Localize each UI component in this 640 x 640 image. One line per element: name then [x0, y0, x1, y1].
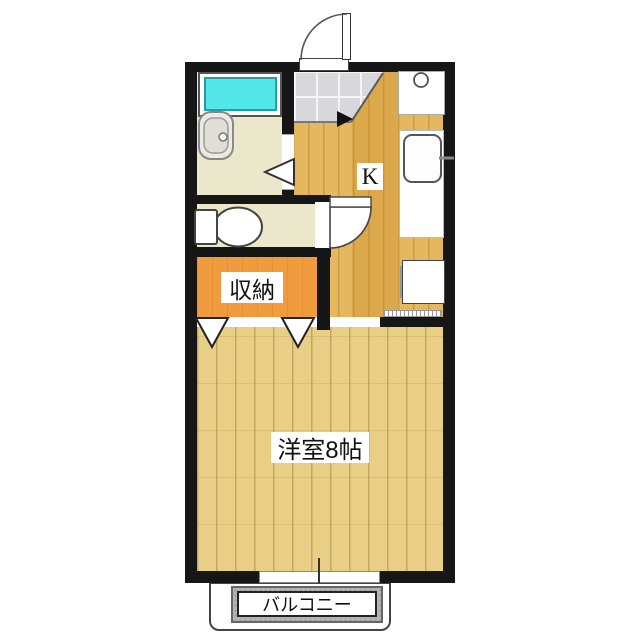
wall-bathroom-right — [282, 62, 294, 136]
bathtub — [204, 77, 277, 111]
stove-unit — [398, 71, 445, 115]
wall-left — [185, 62, 197, 583]
wall-toilet-closet-right — [317, 195, 330, 330]
kitchen-label: K — [357, 163, 383, 190]
wall-kitchen-room — [380, 317, 443, 327]
closet-label: 収納 — [221, 272, 283, 303]
western-room-label: 洋室8帖 — [271, 432, 369, 463]
entrance-door-arc — [301, 14, 347, 60]
wall-toilet-top — [185, 195, 331, 204]
balcony-label: バルコニー — [237, 591, 377, 617]
kitchen-room-doorway — [330, 317, 380, 327]
floor-plan: バルコニー — [0, 0, 640, 640]
balcony-window — [259, 571, 380, 583]
kitchen-counter — [399, 130, 444, 238]
bathroom-door — [282, 134, 294, 190]
hatch-strip — [383, 310, 442, 317]
entrance-door — [342, 13, 351, 60]
toilet-floor — [197, 203, 317, 247]
refrigerator-space — [402, 260, 445, 304]
wall-right — [443, 62, 455, 583]
wall-toilet-bottom — [185, 247, 331, 257]
closet-opening — [197, 317, 317, 327]
